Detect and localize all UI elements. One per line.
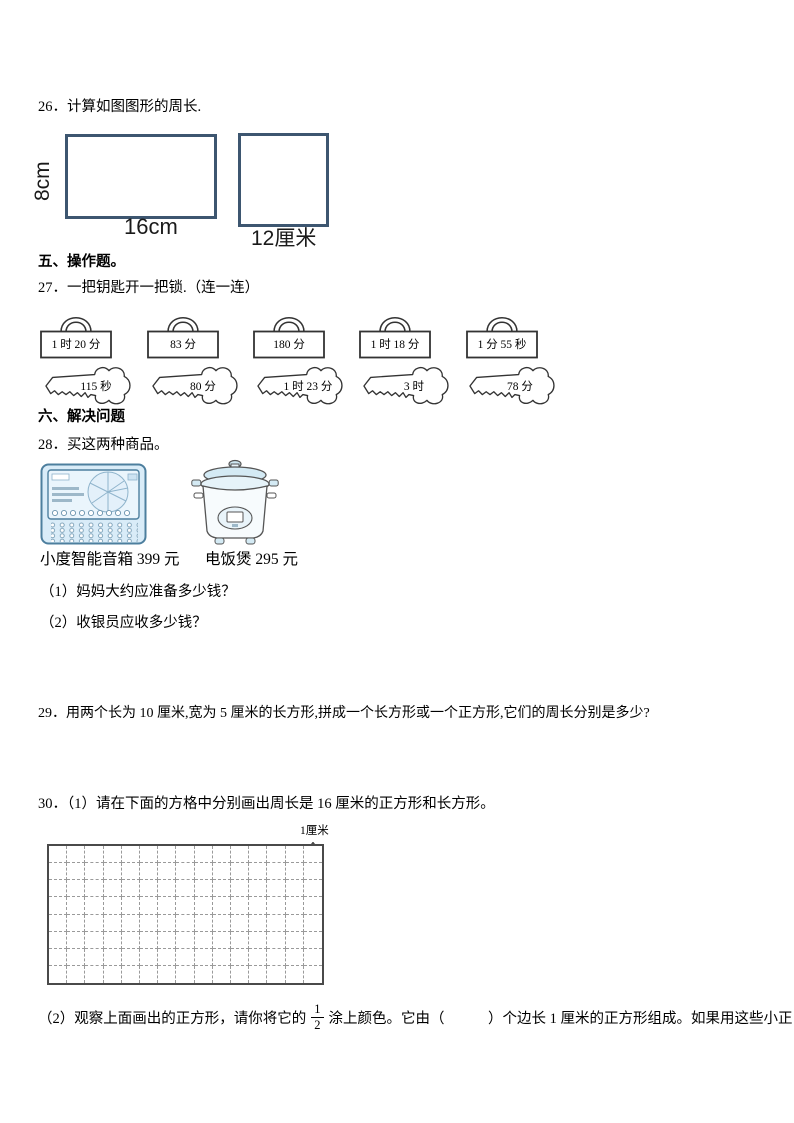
grid-cell: [176, 863, 194, 880]
grid-cell: [140, 863, 158, 880]
key-label: 115 秒: [64, 378, 129, 394]
grid-cell: [286, 846, 304, 863]
q28-title: 28．买这两种商品。: [38, 436, 169, 455]
grid-cell: [104, 846, 122, 863]
grid-cell: [49, 863, 67, 880]
grid-cell: [286, 880, 304, 897]
grid-cell: [104, 880, 122, 897]
grid-cell: [213, 932, 231, 949]
grid-cell: [158, 966, 176, 983]
q30-part2-before: （2）观察上面画出的正方形，请你将它的: [38, 1007, 306, 1028]
grid-cell: [267, 846, 285, 863]
key-item[interactable]: 115 秒: [42, 365, 132, 407]
grid-cell: [122, 897, 140, 914]
grid-cell: [104, 966, 122, 983]
grid-cell: [104, 863, 122, 880]
grid-cell: [158, 846, 176, 863]
grid-cell: [195, 932, 213, 949]
grid-cell: [286, 863, 304, 880]
grid-cell: [49, 846, 67, 863]
grid-cell: [231, 897, 249, 914]
grid-cell: [213, 880, 231, 897]
grid-cell: [249, 949, 267, 966]
grid-cell: [231, 932, 249, 949]
grid-cell: [49, 932, 67, 949]
lock-label: 1 时 20 分: [40, 332, 112, 358]
grid-cell: [104, 932, 122, 949]
grid-cell: [195, 949, 213, 966]
grid-cell: [49, 949, 67, 966]
grid-cell: [267, 966, 285, 983]
grid-cell: [286, 897, 304, 914]
grid-cell: [213, 949, 231, 966]
grid-cell: [158, 880, 176, 897]
grid-cell: [176, 932, 194, 949]
grid-cell: [231, 863, 249, 880]
grid-cell: [140, 846, 158, 863]
grid-cell: [158, 863, 176, 880]
key-label: 78 分: [488, 378, 553, 394]
lock-label: 1 分 55 秒: [466, 332, 538, 358]
worksheet-page: 26．计算如图图形的周长. 8cm 16cm 12厘米 五、操作题。 27．一把…: [0, 0, 794, 1123]
rice-cooker-image: [191, 457, 279, 554]
grid-cell: [286, 949, 304, 966]
lock-item[interactable]: 1 时 18 分: [359, 309, 431, 359]
key-label: 80 分: [171, 378, 236, 394]
grid-cell: [85, 897, 103, 914]
grid-cell: [231, 915, 249, 932]
lock-item[interactable]: 1 时 20 分: [40, 309, 112, 359]
grid-cell: [176, 949, 194, 966]
grid-cell: [140, 880, 158, 897]
rect-height-label: 8cm: [31, 161, 55, 201]
grid-cell: [195, 966, 213, 983]
grid-cell: [213, 915, 231, 932]
grid-cell: [195, 897, 213, 914]
grid-cell: [67, 915, 85, 932]
grid-cell: [304, 932, 322, 949]
grid-cell: [85, 966, 103, 983]
q26-title: 26．计算如图图形的周长.: [38, 98, 201, 117]
square-side-label: 12厘米: [251, 222, 316, 252]
grid-cell: [49, 966, 67, 983]
grid-cell: [249, 863, 267, 880]
grid-cell: [213, 966, 231, 983]
grid-cell: [122, 880, 140, 897]
grid-cell: [249, 880, 267, 897]
lock-item[interactable]: 1 分 55 秒: [466, 309, 538, 359]
grid-cell: [267, 880, 285, 897]
key-item[interactable]: 78 分: [466, 365, 556, 407]
q30-part2: （2）观察上面画出的正方形，请你将它的 1 2 涂上颜色。它由（ ）个边长 1 …: [38, 999, 793, 1035]
grid-cell: [249, 846, 267, 863]
grid-cell: [304, 915, 322, 932]
key-label: 3 时: [382, 378, 447, 394]
grid-cell: [158, 915, 176, 932]
q28-sub2: （2）收银员应收多少钱？: [40, 614, 207, 633]
grid-cell: [286, 966, 304, 983]
grid-cell: [67, 863, 85, 880]
grid-cell: [304, 966, 322, 983]
grid-cell: [104, 949, 122, 966]
grid-cell: [85, 880, 103, 897]
grid-cell: [85, 915, 103, 932]
centimeter-grid[interactable]: [47, 844, 324, 985]
grid-cell: [176, 880, 194, 897]
grid-cell: [267, 915, 285, 932]
product2-label: 电饭煲 295 元: [205, 547, 298, 569]
smart-speaker-image: [40, 463, 147, 550]
lock-label: 83 分: [147, 332, 219, 358]
q30-part2-after: 涂上颜色。它由（ ）个边长 1 厘米的正方形组成。如果用这些小正: [329, 1007, 793, 1028]
grid-cell: [176, 846, 194, 863]
grid-cell: [67, 880, 85, 897]
grid-cell: [104, 897, 122, 914]
lock-item[interactable]: 83 分: [147, 309, 219, 359]
lock-label: 1 时 18 分: [359, 332, 431, 358]
grid-cell: [231, 966, 249, 983]
grid-cell: [176, 966, 194, 983]
grid-cell: [286, 932, 304, 949]
grid-cell: [176, 897, 194, 914]
grid-cell: [267, 932, 285, 949]
grid-cell: [231, 846, 249, 863]
grid-cell: [267, 897, 285, 914]
grid-cell: [231, 949, 249, 966]
grid-cell: [304, 863, 322, 880]
grid-cell: [140, 966, 158, 983]
section6-heading: 六、解决问题: [38, 408, 125, 427]
grid-cell: [249, 966, 267, 983]
grid-cell: [304, 897, 322, 914]
grid-cell: [195, 846, 213, 863]
grid-cell: [249, 915, 267, 932]
grid-cell: [140, 932, 158, 949]
grid-cell: [122, 846, 140, 863]
grid-cell: [67, 966, 85, 983]
grid-cell: [304, 949, 322, 966]
grid-cell: [286, 915, 304, 932]
grid-cell: [304, 846, 322, 863]
grid-cell: [158, 932, 176, 949]
grid-cell: [67, 846, 85, 863]
rectangle-16x8-shape: [65, 134, 217, 219]
q30-part1: 30．（1）请在下面的方格中分别画出周长是 16 厘米的正方形和长方形。: [38, 795, 495, 814]
grid-cell: [195, 915, 213, 932]
grid-cell: [249, 932, 267, 949]
grid-cell: [85, 863, 103, 880]
grid-cell: [67, 897, 85, 914]
rect-width-label: 16cm: [124, 214, 178, 240]
q29-title: 29．用两个长为 10 厘米,宽为 5 厘米的长方形,拼成一个长方形或一个正方形…: [38, 705, 650, 723]
grid-cell: [158, 897, 176, 914]
grid-cell: [249, 897, 267, 914]
grid-cell: [213, 897, 231, 914]
q27-title: 27．一把钥匙开一把锁.（连一连）: [38, 279, 259, 298]
lock-label: 180 分: [253, 332, 325, 358]
grid-cell: [176, 915, 194, 932]
grid-cell: [85, 932, 103, 949]
fraction-numerator: 1: [314, 1002, 320, 1016]
lock-item[interactable]: 180 分: [253, 309, 325, 359]
q28-sub1: （1）妈妈大约应准备多少钱？: [40, 583, 236, 602]
grid-cell: [158, 949, 176, 966]
fraction-one-half: 1 2: [311, 1002, 323, 1032]
grid-unit-label: 1厘米: [300, 822, 329, 838]
grid-cell: [67, 949, 85, 966]
grid-cell: [49, 915, 67, 932]
grid-cell: [304, 880, 322, 897]
grid-cell: [104, 915, 122, 932]
grid-cell: [122, 966, 140, 983]
grid-cell: [213, 846, 231, 863]
fraction-denominator: 2: [311, 1017, 323, 1032]
grid-cell: [195, 880, 213, 897]
grid-cell: [140, 915, 158, 932]
grid-cell: [140, 949, 158, 966]
grid-cell: [231, 880, 249, 897]
grid-cell: [122, 863, 140, 880]
grid-cell: [213, 863, 231, 880]
grid-cell: [122, 915, 140, 932]
grid-cell: [267, 949, 285, 966]
square-12-shape: [238, 133, 329, 227]
grid-cell: [67, 932, 85, 949]
key-item[interactable]: 1 时 23 分: [254, 365, 344, 407]
key-item[interactable]: 80 分: [149, 365, 239, 407]
section5-heading: 五、操作题。: [38, 253, 125, 272]
grid-cell: [267, 863, 285, 880]
grid-cell: [140, 897, 158, 914]
grid-cell: [49, 880, 67, 897]
key-label: 1 时 23 分: [276, 378, 341, 394]
grid-cell: [122, 932, 140, 949]
grid-cell: [122, 949, 140, 966]
grid-cell: [195, 863, 213, 880]
key-item[interactable]: 3 时: [360, 365, 450, 407]
grid-cell: [85, 846, 103, 863]
grid-cell: [49, 897, 67, 914]
product1-label: 小度智能音箱 399 元: [40, 547, 180, 569]
grid-cell: [85, 949, 103, 966]
